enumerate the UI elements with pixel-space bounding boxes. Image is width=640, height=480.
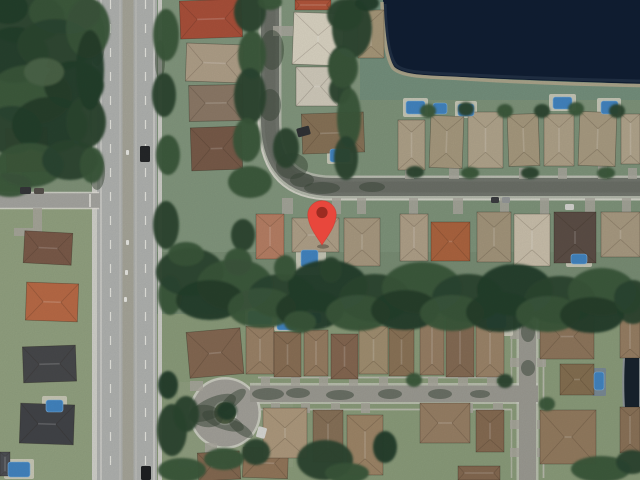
pin-shadow: [317, 244, 329, 248]
map-viewport[interactable]: [0, 0, 640, 480]
pin-overlay: [0, 0, 640, 480]
location-pin-dot: [316, 207, 327, 218]
